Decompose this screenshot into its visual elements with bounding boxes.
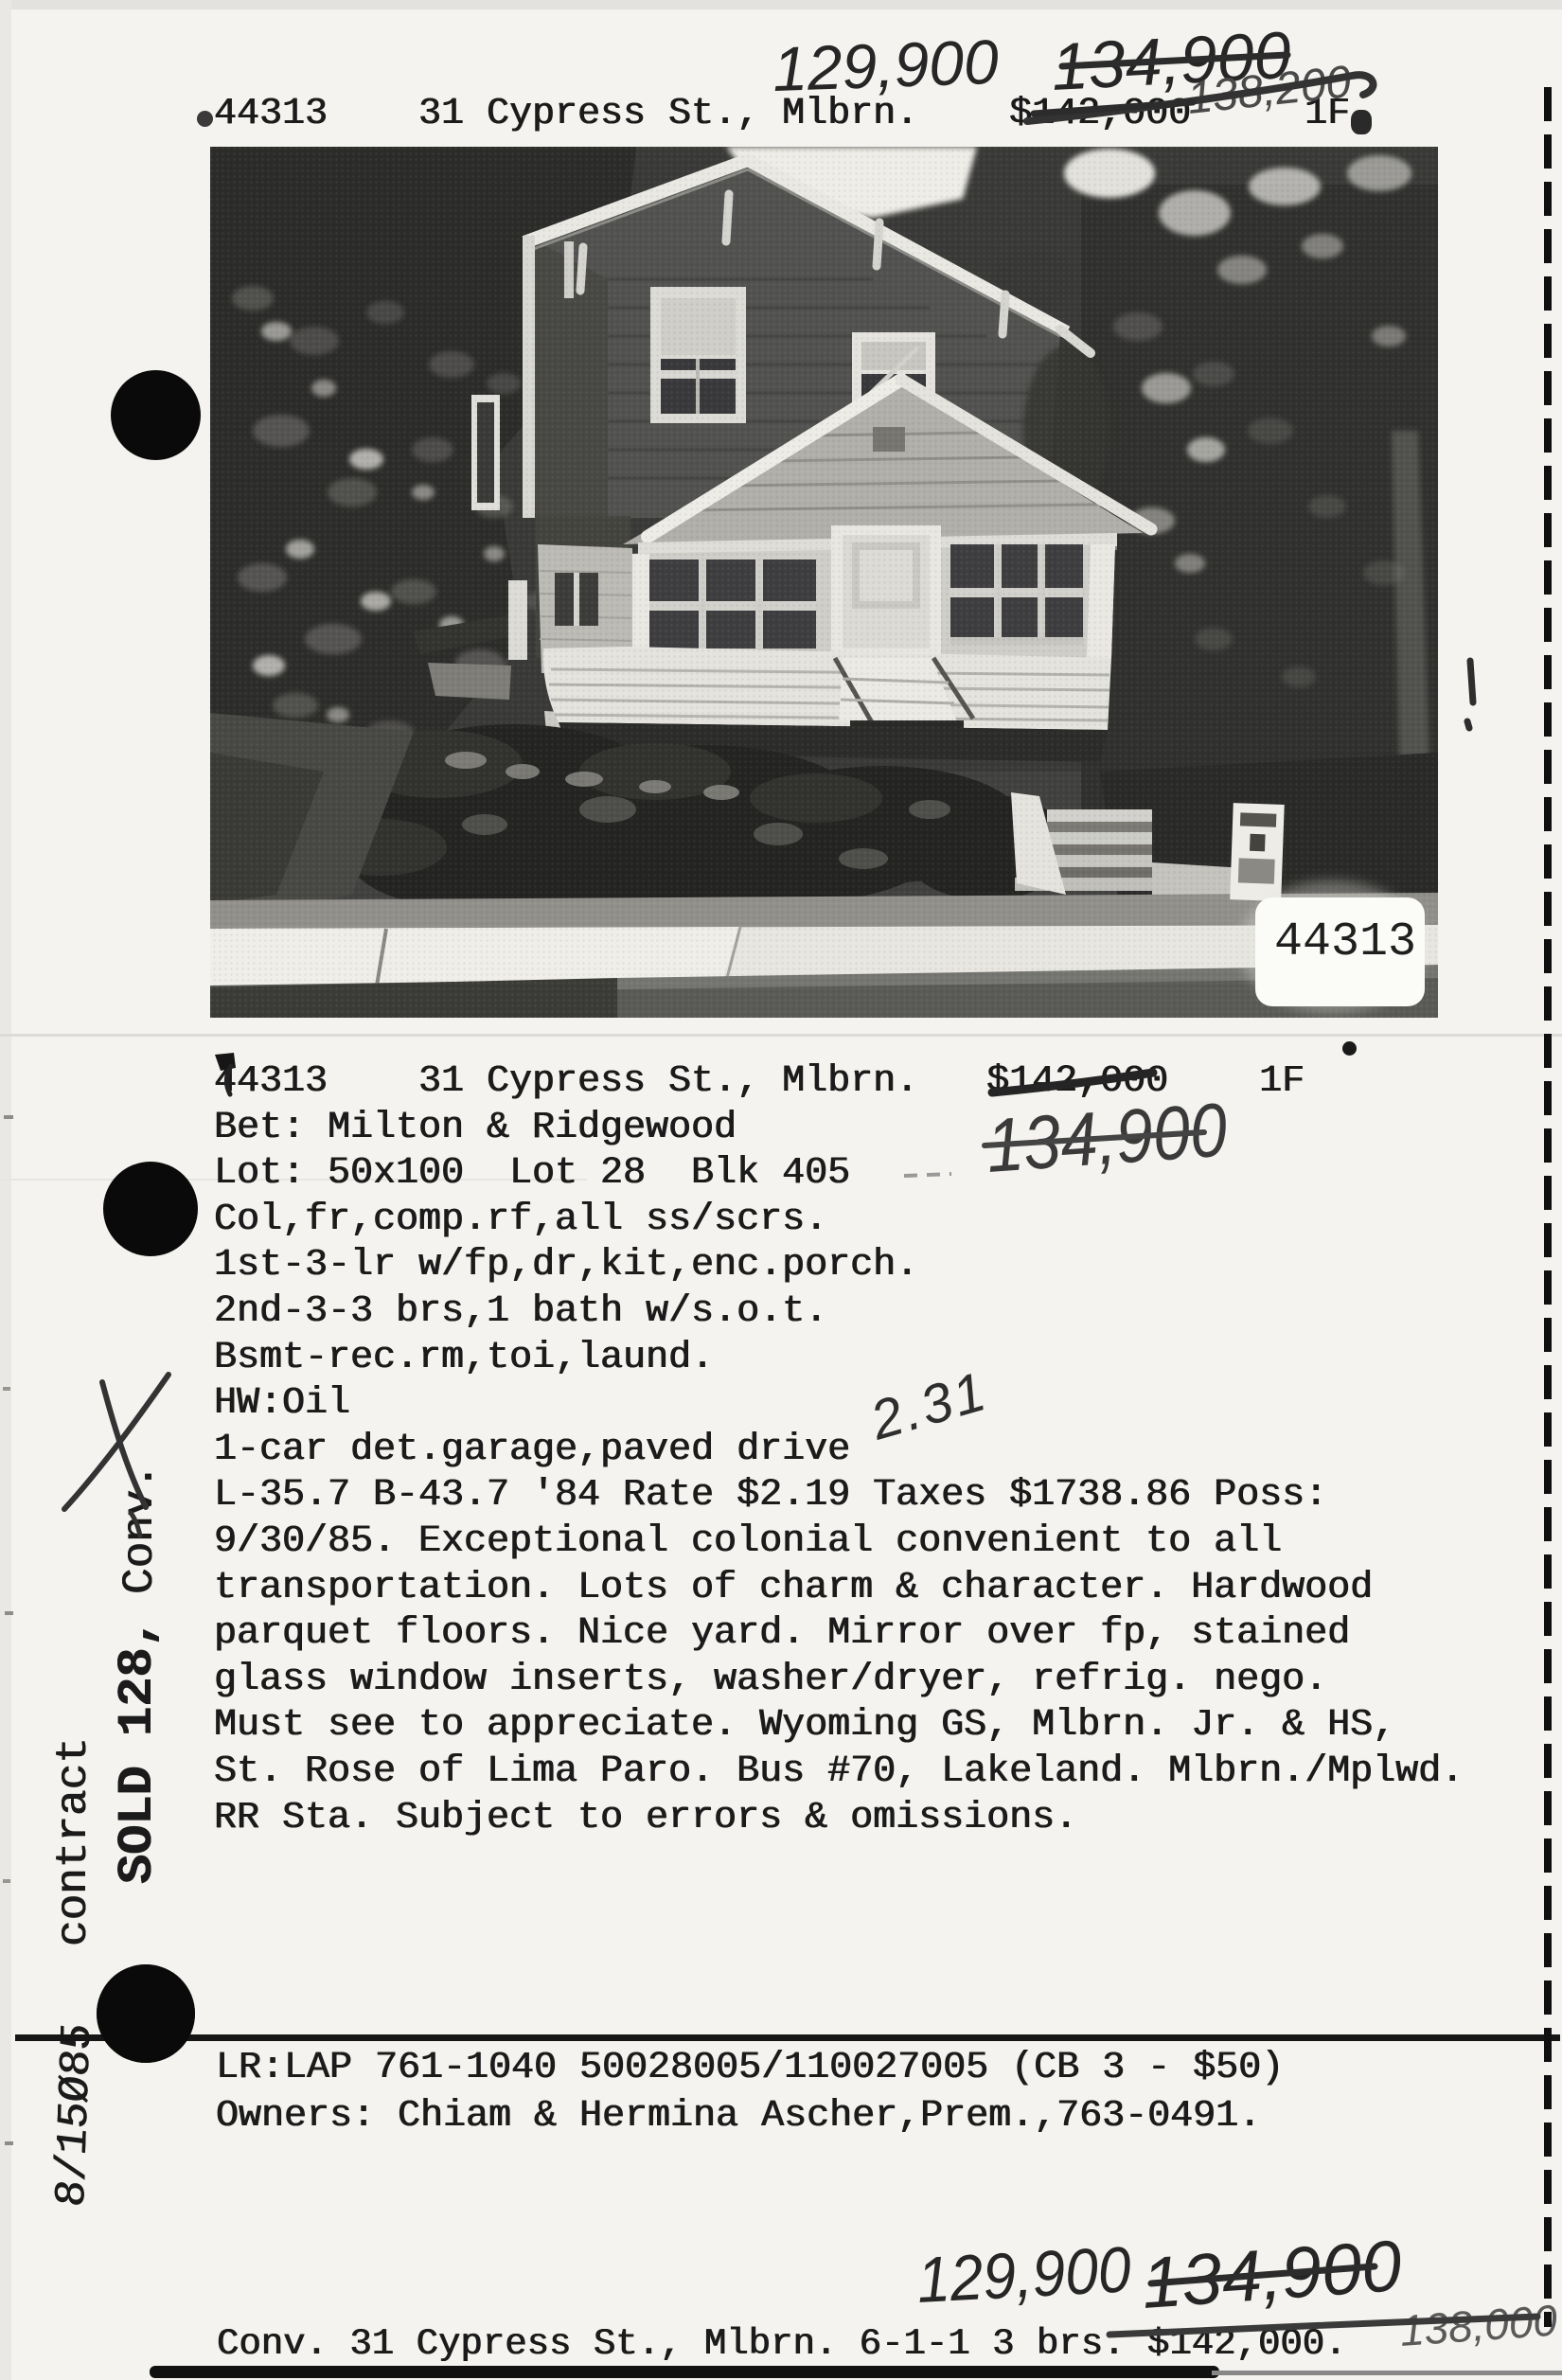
svg-text:2.31: 2.31	[863, 1360, 995, 1452]
svg-text:129,900: 129,900	[915, 2233, 1133, 2317]
svg-text:138,000: 138,000	[1398, 2295, 1559, 2355]
svg-text:129,900: 129,900	[772, 27, 1000, 104]
